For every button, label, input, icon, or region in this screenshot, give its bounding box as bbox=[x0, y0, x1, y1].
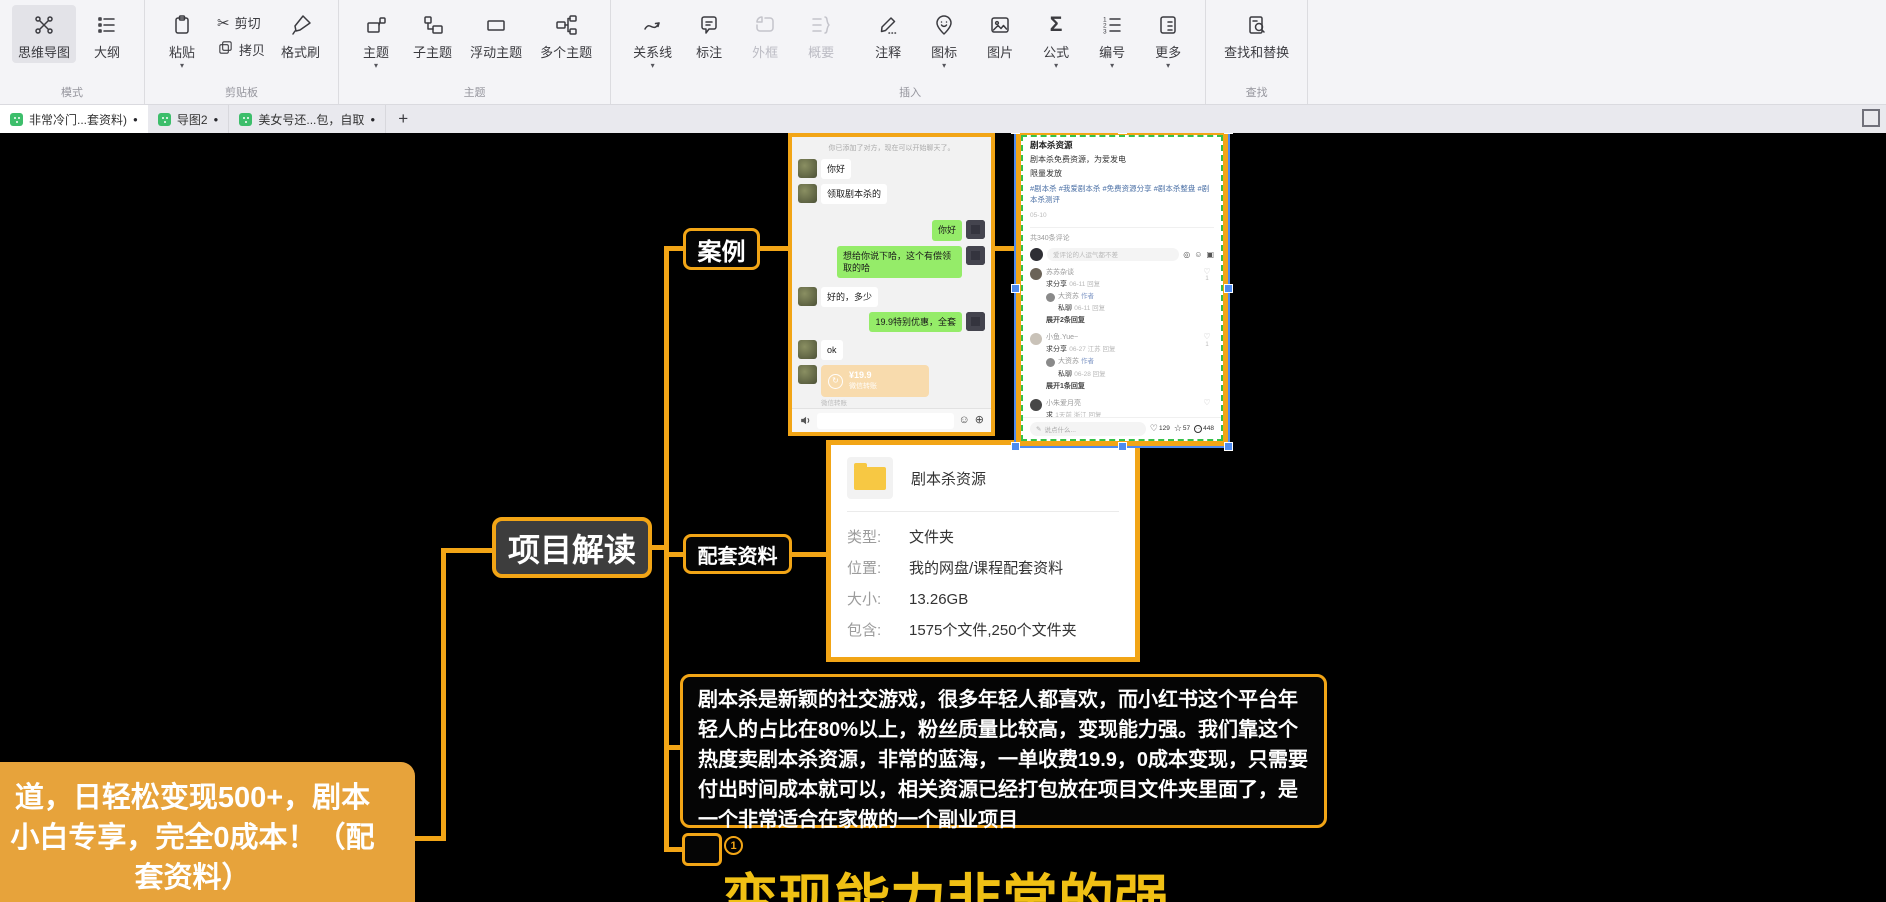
comment-reply: 大资苏作者 私聊 06-28 回复 bbox=[1046, 357, 1196, 379]
numbering-icon: 123 bbox=[1100, 11, 1124, 39]
subtopic-button[interactable]: 子主题 bbox=[407, 5, 458, 63]
expand-replies-link: 展开1条回复 bbox=[1046, 382, 1196, 392]
smiley-pin-icon bbox=[932, 11, 956, 39]
group-label-topic: 主题 bbox=[351, 83, 598, 104]
icon-marker-button[interactable]: 图标 ▾ bbox=[919, 5, 969, 71]
chat-message-row: 领取剧本杀的 bbox=[798, 184, 985, 204]
icon-marker-dropdown-icon[interactable]: ▾ bbox=[942, 63, 946, 69]
group-label-insert: 插入 bbox=[627, 83, 1193, 104]
avatar bbox=[1030, 268, 1042, 280]
image-icon bbox=[988, 11, 1012, 39]
emoji-icon: ☺ bbox=[1194, 250, 1202, 259]
numbering-button[interactable]: 123 编号 ▾ bbox=[1087, 5, 1137, 71]
multiple-topics-button[interactable]: 多个主题 bbox=[534, 5, 598, 63]
ribbon-group-topic: 主题 ▾ 子主题 浮动主题 多个主题 主题 bbox=[339, 0, 611, 104]
description-topic-node[interactable]: 剧本杀是新颖的社交游戏，很多年轻人都喜欢，而小红书这个平台年轻人的占比在80%以… bbox=[680, 674, 1327, 828]
ribbon-group-mode: 思维导图 大纲 模式 bbox=[0, 0, 145, 104]
relationship-button[interactable]: 关系线 ▾ bbox=[627, 5, 678, 71]
connector-root-vertical bbox=[441, 548, 446, 841]
card-row-size: 大小:13.26GB bbox=[847, 584, 1119, 615]
canvas-corner-icon[interactable] bbox=[1862, 109, 1880, 127]
topic-button[interactable]: 主题 ▾ bbox=[351, 5, 401, 71]
numbering-dropdown-icon[interactable]: ▾ bbox=[1110, 63, 1114, 69]
wechat-transfer-card: ↻ ¥19.9 微信转账 bbox=[821, 365, 929, 397]
chat-text-field bbox=[817, 413, 954, 429]
formula-dropdown-icon[interactable]: ▾ bbox=[1054, 63, 1058, 69]
subtopic-icon bbox=[421, 11, 445, 39]
xiaohongshu-screenshot-node[interactable]: 剧本杀资源 剧本杀免费资源，为爱发电 限量发放 #剧本杀 #我爱剧本杀 #免费资… bbox=[1014, 133, 1230, 448]
post-line: 限量发放 bbox=[1030, 168, 1214, 179]
connector-root-top bbox=[441, 548, 494, 553]
format-painter-icon bbox=[289, 11, 313, 39]
post-date: 05-10 bbox=[1030, 212, 1214, 219]
svg-text:3: 3 bbox=[1103, 29, 1107, 36]
note-button[interactable]: 注释 bbox=[863, 5, 913, 63]
unsaved-dot-icon: ● bbox=[370, 115, 375, 124]
more-dropdown-icon[interactable]: ▾ bbox=[1166, 63, 1170, 69]
format-painter-button[interactable]: 格式刷 bbox=[275, 5, 326, 63]
summary-label: 概要 bbox=[808, 42, 834, 61]
topic-icon bbox=[364, 11, 388, 39]
subtopic-label: 子主题 bbox=[413, 42, 452, 61]
paste-dropdown-icon[interactable]: ▾ bbox=[180, 63, 184, 69]
selection-handle[interactable] bbox=[1224, 133, 1233, 134]
avatar bbox=[798, 365, 817, 384]
xiaohongshu-screenshot-content: 剧本杀资源 剧本杀免费资源，为爱发电 限量发放 #剧本杀 #我爱剧本杀 #免费资… bbox=[1021, 135, 1223, 441]
connector-project-spine bbox=[650, 545, 666, 550]
icon-marker-label: 图标 bbox=[931, 42, 957, 61]
folder-name: 剧本杀资源 bbox=[911, 468, 986, 489]
topic-project-node[interactable]: 项目解读 bbox=[492, 517, 652, 578]
tab-document-2[interactable]: 导图2 ● bbox=[148, 105, 230, 133]
avatar bbox=[966, 220, 985, 239]
post-footer-bar: ✎说点什么... ♡129 ☆57 ⋯448 bbox=[1023, 417, 1221, 439]
comment-thread: 小鱼.Yue~ 求分享 06-27 江苏 回复 大资苏作者 私聊 06-28 回… bbox=[1030, 333, 1214, 392]
boundary-icon bbox=[753, 11, 777, 39]
relationship-dropdown-icon[interactable]: ▾ bbox=[651, 63, 655, 69]
empty-topic-node[interactable] bbox=[682, 833, 722, 866]
group-label-mode: 模式 bbox=[12, 83, 132, 104]
copy-button[interactable]: 拷贝 bbox=[217, 39, 265, 59]
find-replace-icon bbox=[1245, 11, 1269, 39]
formula-label: 公式 bbox=[1043, 42, 1069, 61]
emoji-icon: ☺ bbox=[959, 415, 970, 426]
more-label: 更多 bbox=[1155, 42, 1181, 61]
connector-materials-card bbox=[790, 552, 828, 557]
callout-label: 标注 bbox=[696, 42, 722, 61]
selection-handle[interactable] bbox=[1224, 442, 1233, 451]
comment-input: 爱评论的人运气都不差 bbox=[1047, 248, 1179, 261]
mindmap-mode-button[interactable]: 思维导图 bbox=[12, 5, 76, 63]
topic-dropdown-icon[interactable]: ▾ bbox=[374, 63, 378, 69]
summary-button: 概要 bbox=[796, 5, 846, 63]
image-button[interactable]: 图片 bbox=[975, 5, 1025, 63]
comment-reply: 大资苏作者 私聊 06-11 回复 bbox=[1046, 292, 1196, 314]
image-label: 图片 bbox=[987, 42, 1013, 61]
root-topic-node[interactable]: 道，日轻松变现500+，剧本 小白专享，完全0成本！（配 套资料） bbox=[0, 762, 415, 902]
selection-handle[interactable] bbox=[1118, 442, 1127, 451]
ribbon-toolbar: 思维导图 大纲 模式 粘贴 ▾ ✂ 剪切 bbox=[0, 0, 1886, 105]
chat-message-row: 好的，多少 bbox=[798, 287, 985, 307]
chat-message-row: 你好 bbox=[798, 159, 985, 179]
cut-button[interactable]: ✂ 剪切 bbox=[217, 13, 265, 32]
boundary-label: 外框 bbox=[752, 42, 778, 61]
tab-document-3[interactable]: 美女号还...包，自取 ● bbox=[229, 105, 386, 133]
chat-message-row: 你好 bbox=[798, 220, 985, 240]
mindmap-file-icon bbox=[158, 113, 171, 126]
tab-document-1[interactable]: 非常冷门...套资料) ● bbox=[0, 105, 148, 133]
selection-handle[interactable] bbox=[1011, 284, 1020, 293]
selection-handle[interactable] bbox=[1118, 133, 1127, 134]
find-replace-button[interactable]: 查找和替换 bbox=[1218, 5, 1295, 63]
numbering-badge: 1 bbox=[724, 836, 743, 855]
selection-handle[interactable] bbox=[1011, 442, 1020, 451]
avatar bbox=[1030, 248, 1043, 261]
avatar bbox=[798, 159, 817, 178]
group-label-clipboard: 剪贴板 bbox=[157, 83, 326, 104]
topic-materials-node[interactable]: 配套资料 bbox=[683, 534, 792, 574]
group-label-find: 查找 bbox=[1218, 83, 1295, 104]
avatar bbox=[798, 184, 817, 203]
chat-transfer-row: ↻ ¥19.9 微信转账 微信转账 bbox=[798, 365, 985, 408]
multiple-topics-label: 多个主题 bbox=[540, 42, 592, 61]
comment-input-row: 爱评论的人运气都不差 ◎ ☺ ▣ bbox=[1030, 248, 1214, 261]
folder-icon bbox=[847, 457, 893, 499]
ribbon-group-clipboard: 粘贴 ▾ ✂ 剪切 拷贝 格式刷 bbox=[145, 0, 339, 104]
chat-input-bar: ☺ ⊕ bbox=[792, 408, 991, 432]
paste-icon bbox=[170, 11, 194, 39]
card-row-type: 类型:文件夹 bbox=[847, 522, 1119, 553]
copy-icon bbox=[217, 39, 234, 59]
more-button[interactable]: 更多 ▾ bbox=[1143, 5, 1193, 71]
comment-thread: 苏苏杂谈 求分享 06-11 回复 大资苏作者 私聊 06-11 回复 展开2条… bbox=[1030, 268, 1214, 327]
mindmap-file-icon bbox=[239, 113, 252, 126]
avatar bbox=[966, 246, 985, 265]
folder-card-node[interactable]: 剧本杀资源 类型:文件夹 位置:我的网盘/课程配套资料 大小:13.26GB 包… bbox=[826, 440, 1140, 662]
gallery-icon: ▣ bbox=[1206, 250, 1214, 259]
mention-icon: ◎ bbox=[1183, 250, 1190, 259]
comments-count-footer: ⋯448 bbox=[1194, 425, 1214, 433]
ribbon-group-find: 查找和替换 查找 bbox=[1206, 0, 1308, 104]
mindmap-icon bbox=[32, 11, 56, 39]
relationship-line-icon bbox=[641, 11, 665, 39]
avatar bbox=[798, 340, 817, 359]
connector-small-stub bbox=[664, 847, 684, 852]
connector-case-chat bbox=[758, 246, 790, 251]
connector-root-bottom bbox=[412, 836, 445, 841]
chat-message-row: 想给你说下哈，这个有偿领取的哈 bbox=[798, 246, 985, 278]
format-painter-label: 格式刷 bbox=[281, 42, 320, 61]
likes-count: ♡129 bbox=[1150, 423, 1170, 434]
numbering-label: 编号 bbox=[1099, 42, 1125, 61]
card-row-location: 位置:我的网盘/课程配套资料 bbox=[847, 553, 1119, 584]
cut-label: 剪切 bbox=[235, 13, 261, 32]
document-tab-bar: 非常冷门...套资料) ● 导图2 ● 美女号还...包，自取 ● + bbox=[0, 105, 1886, 133]
ribbon-group-insert: 关系线 ▾ 标注 外框 概要 bbox=[611, 0, 1206, 104]
description-text: 剧本杀是新颖的社交游戏，很多年轻人都喜欢，而小红书这个平台年轻人的占比在80%以… bbox=[683, 677, 1324, 843]
transfer-icon: ↻ bbox=[828, 374, 843, 389]
like-icon: ♡1 bbox=[1200, 268, 1214, 327]
relationship-label: 关系线 bbox=[633, 42, 672, 61]
comments-count: 共340条评论 bbox=[1030, 233, 1214, 243]
unsaved-dot-icon: ● bbox=[133, 115, 138, 124]
more-doc-icon bbox=[1156, 11, 1180, 39]
tab-1-title: 非常冷门...套资料) bbox=[29, 111, 127, 128]
selection-handle[interactable] bbox=[1224, 284, 1233, 293]
chat-system-message: 你已添加了对方，现在可以开始聊天了。 bbox=[798, 144, 985, 154]
outline-icon bbox=[95, 11, 119, 39]
post-hashtags: #剧本杀 #我爱剧本杀 #免费资源分享 #剧本杀整盘 #剧本杀测评 bbox=[1030, 183, 1214, 206]
note-label: 注释 bbox=[875, 42, 901, 61]
outline-mode-button[interactable]: 大纲 bbox=[82, 5, 132, 63]
tab-3-title: 美女号还...包，自取 bbox=[258, 111, 364, 128]
card-row-contains: 包含:1575个文件,250个文件夹 bbox=[847, 615, 1119, 646]
floating-topic-button[interactable]: 浮动主题 bbox=[464, 5, 528, 63]
more-plus-icon: ⊕ bbox=[975, 415, 984, 426]
like-icon: ♡1 bbox=[1200, 333, 1214, 392]
floating-topic-label: 浮动主题 bbox=[470, 42, 522, 61]
chat-message-row: ok bbox=[798, 340, 985, 360]
find-replace-label: 查找和替换 bbox=[1224, 42, 1289, 61]
mindmap-file-icon bbox=[10, 113, 23, 126]
floating-topic-icon bbox=[484, 11, 508, 39]
mindmap-mode-label: 思维导图 bbox=[18, 42, 70, 61]
post-title: 剧本杀资源 bbox=[1030, 139, 1214, 151]
topic-case-node[interactable]: 案例 bbox=[683, 228, 760, 270]
mindmap-canvas[interactable]: 道，日轻松变现500+，剧本 小白专享，完全0成本！（配 套资料） 项目解读 案… bbox=[0, 133, 1886, 902]
cut-icon: ✂ bbox=[217, 14, 230, 32]
avatar bbox=[966, 312, 985, 331]
unsaved-dot-icon: ● bbox=[214, 115, 219, 124]
callout-icon bbox=[697, 11, 721, 39]
formula-sigma-icon: Σ bbox=[1050, 11, 1063, 39]
avatar bbox=[1030, 333, 1042, 345]
avatar bbox=[1030, 399, 1042, 411]
topic-label: 主题 bbox=[363, 42, 389, 61]
pencil-icon: ✎ bbox=[1036, 425, 1041, 433]
chat-message-row: 19.9特别优惠，全套 bbox=[798, 312, 985, 332]
big-title-text[interactable]: 变现能力非常的强 bbox=[722, 856, 1170, 902]
connector-case-stub bbox=[664, 246, 685, 251]
avatar bbox=[1046, 358, 1055, 367]
summary-icon bbox=[809, 11, 833, 39]
selection-handle[interactable] bbox=[1011, 133, 1020, 134]
note-icon bbox=[876, 11, 900, 39]
wechat-screenshot-node[interactable]: 你已添加了对方，现在可以开始聊天了。 你好 领取剧本杀的 你好 想给你说下哈，这… bbox=[788, 133, 995, 436]
multiple-topics-icon bbox=[554, 11, 578, 39]
avatar bbox=[1046, 293, 1055, 302]
boundary-button: 外框 bbox=[740, 5, 790, 63]
new-tab-button[interactable]: + bbox=[386, 105, 420, 133]
formula-button[interactable]: Σ 公式 ▾ bbox=[1031, 5, 1081, 71]
paste-label: 粘贴 bbox=[169, 42, 195, 61]
tab-2-title: 导图2 bbox=[177, 111, 208, 128]
callout-button[interactable]: 标注 bbox=[684, 5, 734, 63]
expand-replies-link: 展开2条回复 bbox=[1046, 316, 1196, 326]
voice-icon bbox=[799, 414, 812, 427]
post-line: 剧本杀免费资源，为爱发电 bbox=[1030, 154, 1214, 165]
copy-label: 拷贝 bbox=[239, 40, 265, 59]
avatar bbox=[798, 287, 817, 306]
stars-count: ☆57 bbox=[1174, 423, 1190, 434]
outline-mode-label: 大纲 bbox=[94, 42, 120, 61]
wechat-screenshot-content: 你已添加了对方，现在可以开始聊天了。 你好 领取剧本杀的 你好 想给你说下哈，这… bbox=[792, 137, 991, 432]
paste-button[interactable]: 粘贴 ▾ bbox=[157, 5, 207, 71]
